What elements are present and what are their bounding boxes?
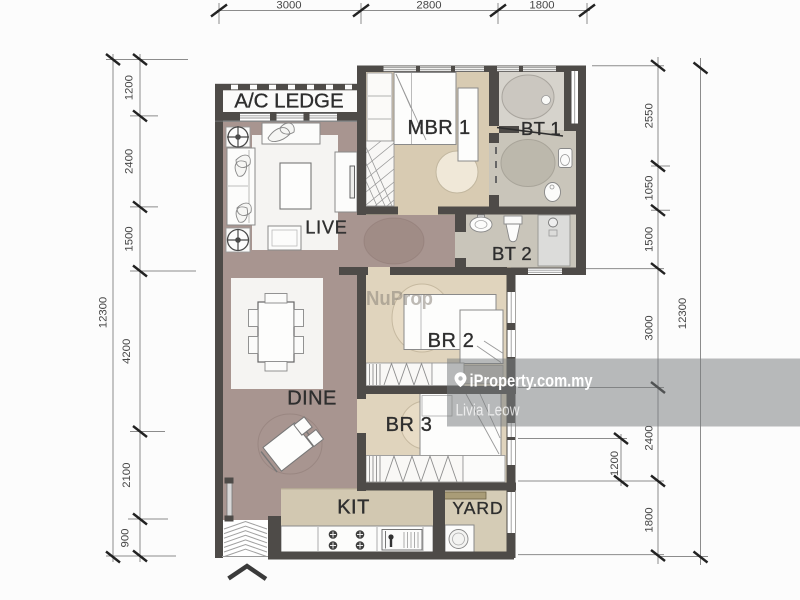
svg-text:2400: 2400 xyxy=(124,149,136,174)
svg-text:LIVE: LIVE xyxy=(305,218,347,238)
svg-text:MBR 1: MBR 1 xyxy=(407,117,470,139)
svg-text:12300: 12300 xyxy=(677,298,689,329)
svg-text:1200: 1200 xyxy=(609,451,621,476)
svg-text:900: 900 xyxy=(120,529,132,548)
svg-text:1800: 1800 xyxy=(644,507,656,532)
svg-text:12300: 12300 xyxy=(98,297,110,328)
svg-text:1500: 1500 xyxy=(644,227,656,252)
svg-text:1200: 1200 xyxy=(124,75,136,100)
svg-text:4200: 4200 xyxy=(121,339,133,364)
svg-text:BT 2: BT 2 xyxy=(492,243,532,264)
svg-text:BR 3: BR 3 xyxy=(386,414,433,436)
svg-text:YARD: YARD xyxy=(452,498,503,518)
svg-text:BR 2: BR 2 xyxy=(428,330,475,352)
svg-text:2800: 2800 xyxy=(416,0,441,12)
svg-text:1050: 1050 xyxy=(644,176,656,201)
svg-text:BT 1: BT 1 xyxy=(521,118,561,139)
svg-text:3000: 3000 xyxy=(276,0,301,12)
svg-text:2400: 2400 xyxy=(644,425,656,450)
svg-text:DINE: DINE xyxy=(287,388,336,410)
svg-text:Livia Leow: Livia Leow xyxy=(456,402,520,420)
svg-text:1500: 1500 xyxy=(124,226,136,251)
svg-text:3000: 3000 xyxy=(644,315,656,340)
svg-text:iProperty.com.my: iProperty.com.my xyxy=(470,371,593,391)
svg-text:NuProp: NuProp xyxy=(366,287,433,310)
svg-text:KIT: KIT xyxy=(337,497,370,519)
svg-text:2100: 2100 xyxy=(121,463,133,488)
svg-text:A/C LEDGE: A/C LEDGE xyxy=(234,90,343,113)
svg-text:1800: 1800 xyxy=(529,0,554,12)
svg-text:2550: 2550 xyxy=(644,103,656,128)
